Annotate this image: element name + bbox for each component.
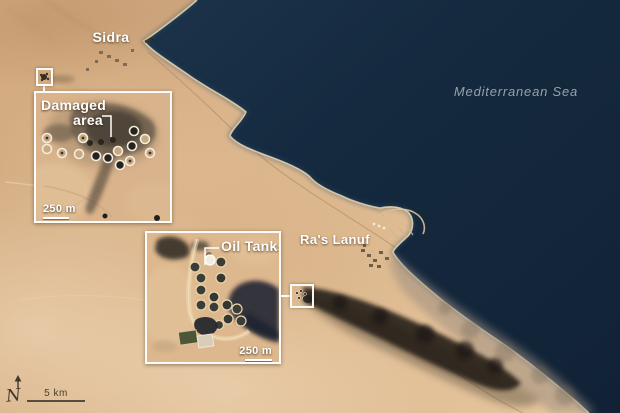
map-scale-bar: 5 km [27, 388, 85, 402]
damaged-area-marker-box [36, 68, 53, 86]
label-mediterranean-sea: Mediterranean Sea [428, 84, 604, 99]
compass-north-label: N [5, 385, 22, 406]
oil-tanks-marker-content [292, 286, 312, 306]
inset-oil-tanks-title: Oil Tanks [221, 239, 281, 254]
oil-tanks-scale-label: 250 m [239, 345, 272, 357]
damaged-area-connector-line [43, 85, 45, 92]
oil-tanks-scale-rule [245, 359, 272, 361]
sidra-town [86, 49, 134, 71]
inset-damaged-area-title: Damaged area [41, 98, 103, 128]
inset-damaged-area-scale: 250 m [43, 203, 76, 219]
damaged-area-scale-label: 250 m [43, 203, 76, 215]
label-ras-lanuf: Ra's Lanuf [293, 232, 377, 247]
satellite-map: Damaged area 250 m [0, 0, 620, 413]
damaged-area-title-line2: area [41, 113, 103, 128]
damaged-area-marker-content [38, 70, 51, 84]
inset-oil-tanks: Oil Tanks 250 m [145, 231, 281, 364]
oil-tanks-marker-box [290, 284, 314, 308]
map-scale-rule [27, 400, 85, 402]
label-sidra: Sidra [83, 29, 139, 45]
damaged-area-scale-rule [43, 217, 69, 219]
map-scale-label: 5 km [27, 388, 85, 399]
damaged-area-title-line1: Damaged [41, 98, 103, 113]
inset-oil-tanks-scale: 250 m [239, 345, 272, 361]
inset-damaged-area: Damaged area 250 m [34, 91, 172, 223]
oil-tanks-title-text: Oil Tanks [221, 238, 281, 254]
